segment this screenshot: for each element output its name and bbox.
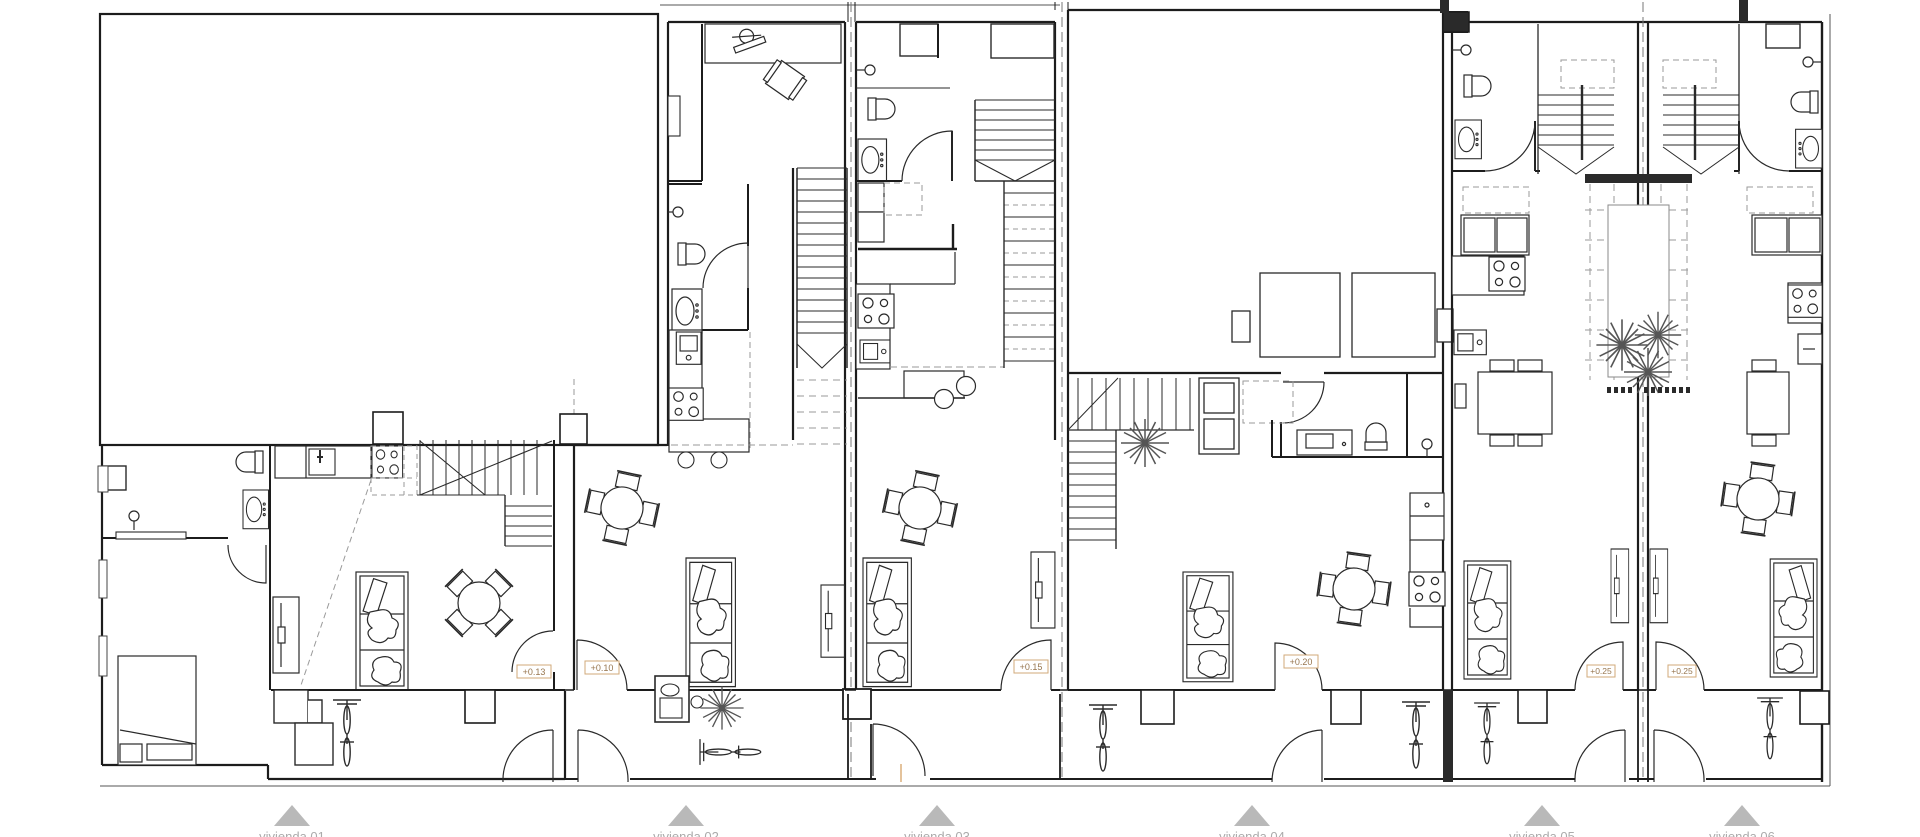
svg-text:+0.25: +0.25	[1671, 666, 1693, 676]
svg-text:vivienda 03: vivienda 03	[904, 829, 970, 837]
svg-text:vivienda 06: vivienda 06	[1709, 829, 1775, 837]
svg-text:+0.25: +0.25	[1590, 666, 1612, 676]
svg-text:vivienda 04: vivienda 04	[1219, 829, 1285, 837]
svg-text:+0.13: +0.13	[523, 667, 546, 677]
svg-text:vivienda 01: vivienda 01	[259, 829, 325, 837]
svg-text:+0.10: +0.10	[591, 663, 614, 673]
svg-text:+0.15: +0.15	[1020, 662, 1043, 672]
svg-text:vivienda 05: vivienda 05	[1509, 829, 1575, 837]
svg-text:vivienda 02: vivienda 02	[653, 829, 719, 837]
svg-text:+0.20: +0.20	[1290, 657, 1313, 667]
